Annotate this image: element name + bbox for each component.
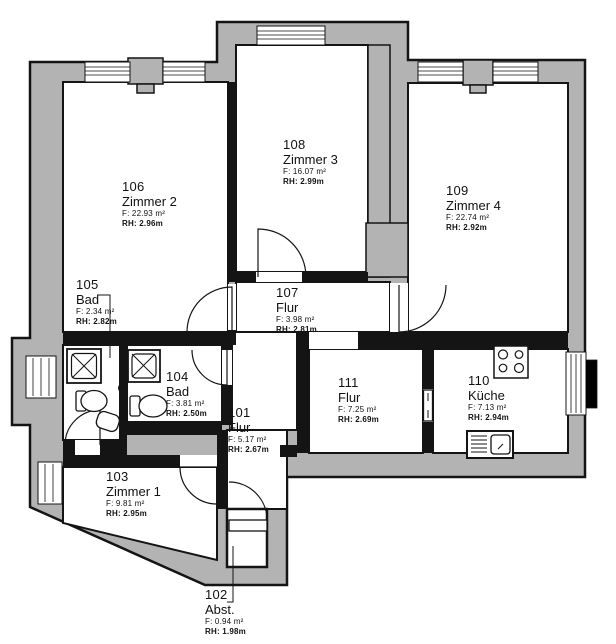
window-pier — [128, 58, 163, 84]
window-pier — [463, 60, 493, 85]
shower-icon — [128, 350, 160, 382]
room-label-109: 109 Zimmer 4 F: 22.74 m² RH: 2.92m — [446, 184, 501, 232]
room-name: Abst. — [205, 603, 246, 617]
room-number: 111 — [338, 376, 379, 390]
room-area: F: 3.98 m² — [276, 316, 317, 324]
room-area: F: 3.81 m² — [166, 400, 207, 408]
room-area: F: 22.93 m² — [122, 210, 177, 218]
room-name: Bad — [76, 293, 117, 307]
toilet-icon — [130, 395, 167, 417]
window — [163, 62, 205, 82]
room-area: F: 16.07 m² — [283, 168, 338, 176]
room-number: 108 — [283, 138, 338, 152]
room-name: Zimmer 3 — [283, 153, 338, 167]
room-name: Flur — [276, 301, 317, 315]
toilet-icon — [76, 391, 107, 412]
room-area: F: 22.74 m² — [446, 214, 501, 222]
room-height: RH: 2.50m — [166, 410, 207, 418]
room-number: 101 — [228, 406, 269, 420]
room-area: F: 5.17 m² — [228, 436, 269, 444]
room-label-101: 101 Flur F: 5.17 m² RH: 2.67m — [228, 406, 269, 454]
window — [257, 26, 325, 45]
room-height: RH: 2.92m — [446, 224, 501, 232]
room-height: RH: 2.99m — [283, 178, 338, 186]
room-name: Flur — [338, 391, 379, 405]
room-number: 105 — [76, 278, 117, 292]
room-label-111: 111 Flur F: 7.25 m² RH: 2.69m — [338, 376, 379, 424]
room-height: RH: 2.81m — [276, 326, 317, 334]
room-height: RH: 2.82m — [76, 318, 117, 326]
room-label-106: 106 Zimmer 2 F: 22.93 m² RH: 2.96m — [122, 180, 177, 228]
room-number: 110 — [468, 374, 509, 388]
room-number: 103 — [106, 470, 161, 484]
window — [418, 62, 463, 82]
room-label-108: 108 Zimmer 3 F: 16.07 m² RH: 2.99m — [283, 138, 338, 186]
shower-icon — [67, 349, 101, 383]
room-name: Flur — [228, 421, 269, 435]
window — [38, 462, 62, 504]
room-height: RH: 2.69m — [338, 416, 379, 424]
room-number: 109 — [446, 184, 501, 198]
room-number: 104 — [166, 370, 207, 384]
room-area: F: 7.25 m² — [338, 406, 379, 414]
room-height: RH: 1.98m — [205, 628, 246, 636]
pipe-shaft-dot — [118, 383, 128, 393]
room-label-103: 103 Zimmer 1 F: 9.81 m² RH: 2.95m — [106, 470, 161, 518]
room-label-105: 105 Bad F: 2.34 m² RH: 2.82m — [76, 278, 117, 326]
window — [85, 62, 130, 82]
door-abst-leaf — [229, 520, 267, 531]
room-name: Bad — [166, 385, 207, 399]
room-area: F: 0.94 m² — [205, 618, 246, 626]
room-name: Zimmer 2 — [122, 195, 177, 209]
room-area: F: 2.34 m² — [76, 308, 117, 316]
floorplan-page: 101 Flur F: 5.17 m² RH: 2.67m 102 Abst. … — [0, 0, 616, 644]
pipe-shaft-dot — [120, 409, 127, 416]
room-height: RH: 2.67m — [228, 446, 269, 454]
room-name: Zimmer 1 — [106, 485, 161, 499]
room-number: 102 — [205, 588, 246, 602]
room-number: 106 — [122, 180, 177, 194]
room-name: Zimmer 4 — [446, 199, 501, 213]
room-label-110: 110 Küche F: 7.13 m² RH: 2.94m — [468, 374, 509, 422]
room-height: RH: 2.94m — [468, 414, 509, 422]
room-area: F: 9.81 m² — [106, 500, 161, 508]
room-height: RH: 2.96m — [122, 220, 177, 228]
room-label-104: 104 Bad F: 3.81 m² RH: 2.50m — [166, 370, 207, 418]
kitchen-sink-icon — [467, 431, 513, 458]
room-area: F: 7.13 m² — [468, 404, 509, 412]
room-height: RH: 2.95m — [106, 510, 161, 518]
room-label-107: 107 Flur F: 3.98 m² RH: 2.81m — [276, 286, 317, 334]
room-name: Küche — [468, 389, 509, 403]
window — [493, 62, 538, 82]
room-number: 107 — [276, 286, 317, 300]
room-label-102: 102 Abst. F: 0.94 m² RH: 1.98m — [205, 588, 246, 636]
